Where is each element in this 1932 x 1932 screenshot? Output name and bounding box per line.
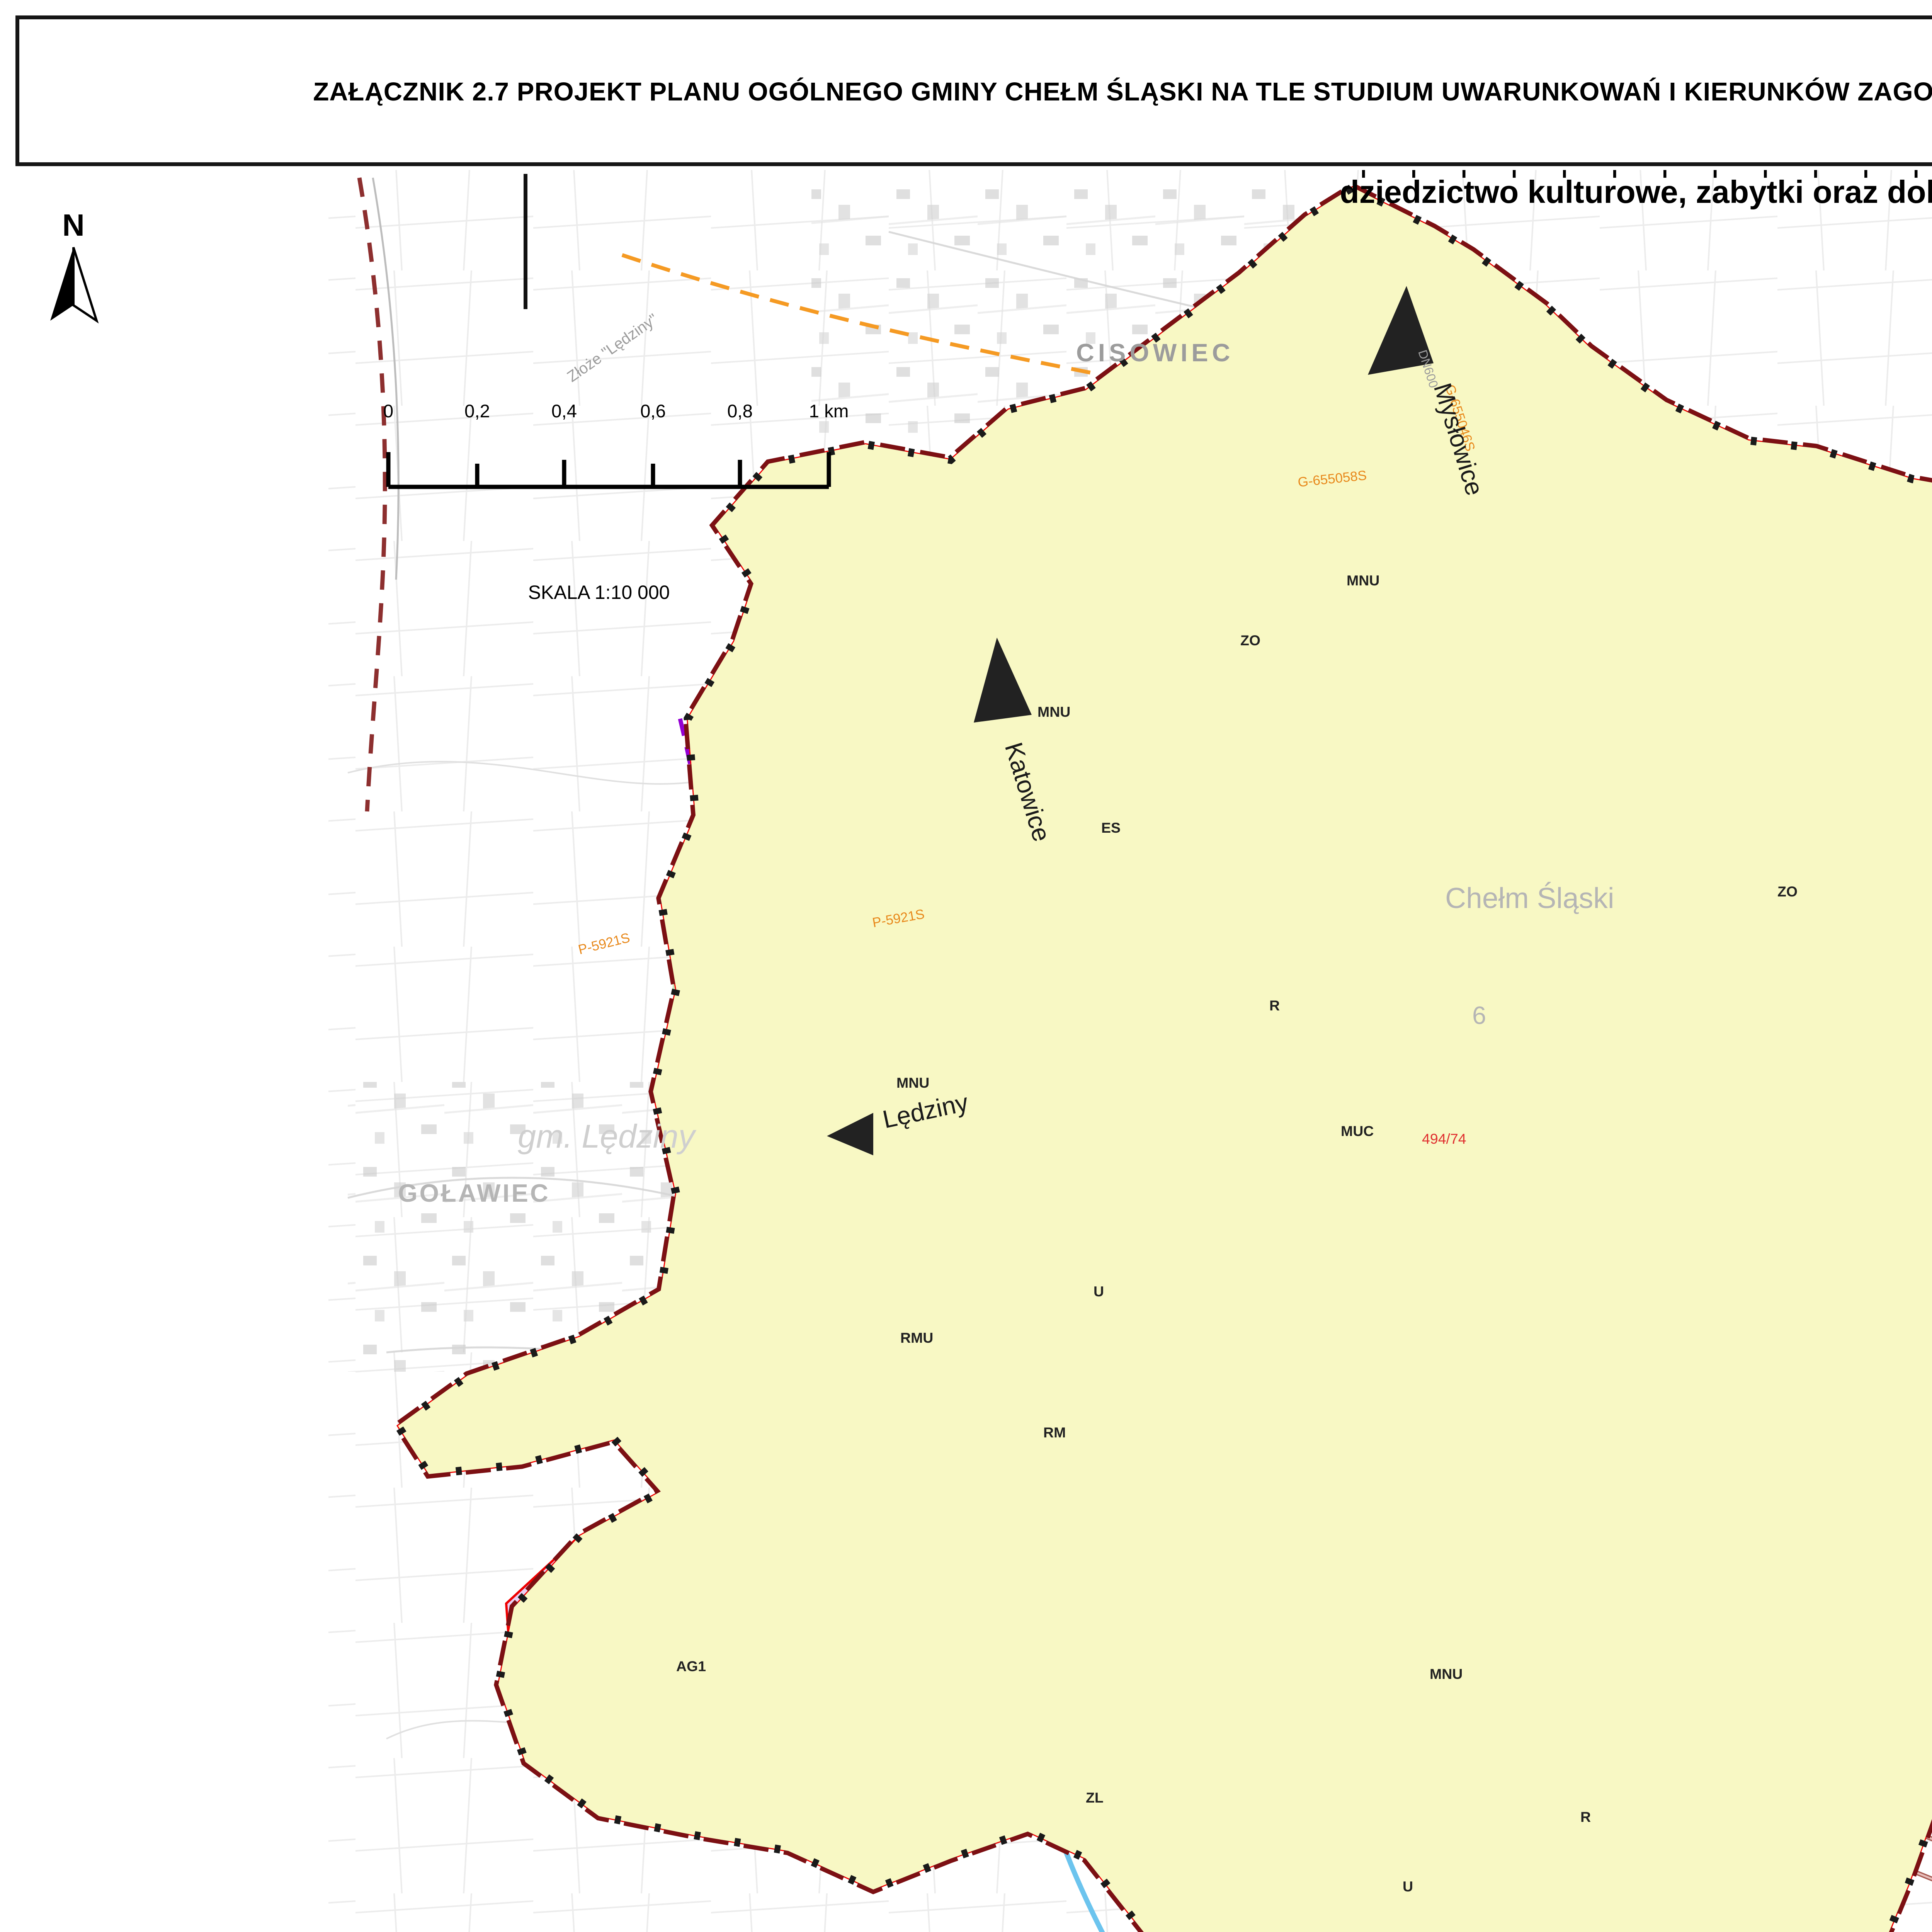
- zone-label-mnu: MNU: [1037, 704, 1070, 720]
- zone-label-muc: MUC: [1341, 1123, 1374, 1139]
- zone-label-zo: ZO: [1777, 883, 1798, 900]
- zone-label-zo: ZO: [1240, 632, 1260, 648]
- zone-label-mnu: MNU: [1430, 1666, 1463, 1682]
- zone-label-r: R: [1269, 997, 1280, 1014]
- label-gm-ledziny: gm. Lędziny: [518, 1118, 697, 1155]
- scale-tick: 0: [383, 401, 393, 422]
- label-cisowiec: CISOWIEC: [1076, 338, 1234, 367]
- zone-label-mnu: MNU: [896, 1075, 929, 1091]
- subtitle-text: dziedzictwo kulturowe, zabytki oraz dobr…: [1340, 176, 1932, 211]
- zone-label-mnu: MNU: [1347, 572, 1379, 588]
- north-label: N: [62, 208, 85, 242]
- zone-label-zl: ZL: [1086, 1789, 1104, 1806]
- zone-label-u: U: [1403, 1878, 1413, 1895]
- subtitle: dziedzictwo kulturowe, zabytki oraz dobr…: [1236, 176, 1932, 213]
- label-parcel-494: 494/74: [1422, 1131, 1466, 1147]
- zone-label-r: R: [1580, 1809, 1591, 1825]
- zone-label-rmu: RMU: [900, 1330, 933, 1346]
- zone-label-u: U: [1094, 1283, 1104, 1299]
- label-chelm-slaski: Chełm Śląski: [1445, 882, 1614, 914]
- scale-tick: 0,2: [464, 401, 490, 422]
- zone-label-es: ES: [1101, 820, 1121, 836]
- scale-tick: 0,8: [727, 401, 753, 422]
- plan-sheet: N 0 0,2 0,4 0,6 0,8 1 km SKALA 1:10 000 …: [0, 0, 1932, 1932]
- scale-tick: 0,4: [551, 401, 577, 422]
- title-bar: ZAŁĄCZNIK 2.7 PROJEKT PLANU OGÓLNEGO GMI…: [15, 15, 1932, 166]
- zone-label-ag1: AG1: [676, 1658, 706, 1674]
- scale-tick: 0,6: [640, 401, 666, 422]
- zone-label-rm: RM: [1043, 1424, 1066, 1440]
- map-canvas: N 0 0,2 0,4 0,6 0,8 1 km SKALA 1:10 000 …: [0, 0, 1932, 1932]
- scale-tick: 1 km: [809, 401, 849, 422]
- label-chelm-6: 6: [1472, 1001, 1486, 1029]
- label-golawiec: GOŁAWIEC: [398, 1179, 550, 1207]
- scale-caption: SKALA 1:10 000: [528, 582, 670, 603]
- page-title: ZAŁĄCZNIK 2.7 PROJEKT PLANU OGÓLNEGO GMI…: [313, 77, 1932, 105]
- north-arrow: N: [50, 208, 97, 321]
